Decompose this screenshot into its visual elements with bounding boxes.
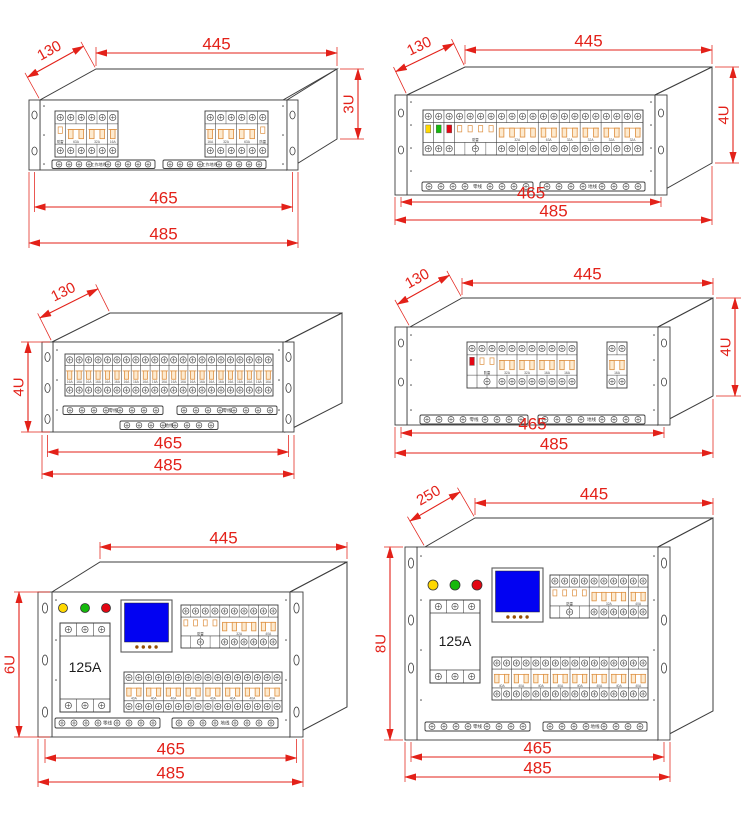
breaker-handle xyxy=(216,688,220,696)
breaker-rating-label: 40A xyxy=(210,697,217,701)
breaker-handle xyxy=(153,371,157,379)
breaker-rating-label: 40A xyxy=(265,632,272,636)
strip-label: 地线 xyxy=(221,720,230,726)
strip-label: 地线 xyxy=(588,183,597,189)
panel-rivet-dot xyxy=(43,163,45,165)
panel-rivet-dot xyxy=(653,555,655,557)
breaker-rating-label: 16A xyxy=(161,380,168,384)
indicator-lamp xyxy=(450,580,460,590)
dimension-label: 465 xyxy=(149,189,177,208)
breaker-handle xyxy=(172,371,176,379)
dimension-label: 485 xyxy=(154,456,182,475)
ear-slot-hole xyxy=(32,147,37,155)
breaker-handle xyxy=(592,592,596,601)
lcd-button xyxy=(135,645,138,648)
extension-line xyxy=(452,39,465,65)
dimension-label: 465 xyxy=(518,415,546,434)
panel-rivet-dot xyxy=(410,334,412,336)
breaker-handle xyxy=(209,371,213,379)
indicator-lamp xyxy=(428,580,438,590)
spd-module xyxy=(458,126,462,132)
breaker-handle xyxy=(247,371,251,379)
panel-rivet-dot xyxy=(420,699,422,701)
breaker-handle xyxy=(592,674,596,683)
breaker-handle xyxy=(89,130,94,139)
strip-label: 零线 xyxy=(223,407,232,414)
extension-line xyxy=(395,300,409,325)
breaker-handle xyxy=(631,674,635,683)
strip-label: 地线 xyxy=(165,422,174,428)
breaker-handle xyxy=(510,361,514,370)
breaker-handle xyxy=(206,688,210,696)
breaker-rating-label: 防雷 xyxy=(197,631,204,636)
breaker-handle xyxy=(77,371,81,379)
breaker-handle xyxy=(143,371,147,379)
breaker-handle xyxy=(620,361,624,370)
extension-line xyxy=(38,313,51,340)
breaker-handle xyxy=(504,674,508,683)
breaker-rating-label: 32A xyxy=(630,138,637,142)
panel-rivet-dot xyxy=(285,719,287,721)
mounting-ear xyxy=(287,100,298,170)
breaker-handle xyxy=(524,674,528,683)
breaker-handle xyxy=(255,688,259,696)
breaker-rating-label: 防雷 xyxy=(484,370,491,375)
breaker-rating-label: 40A xyxy=(518,684,525,688)
strip-label: 地线 xyxy=(591,723,600,729)
panel-rivet-dot xyxy=(410,170,412,172)
breaker-rating-label: 16A xyxy=(228,380,235,384)
panel-rivet-dot xyxy=(278,349,280,351)
breaker-rating-label: 16A xyxy=(207,140,214,144)
dimension-label: 445 xyxy=(580,485,608,504)
dimension-label: 465 xyxy=(157,740,185,759)
panel-rivet-dot xyxy=(650,147,652,149)
rack-unit-dimension-diagram: 防雷63A32A16A16A32A63A防雷工作地线工作地线1304453U46… xyxy=(0,0,750,814)
breaker-handle xyxy=(641,592,645,601)
breaker-handle xyxy=(176,688,180,696)
breaker-rating-label: 40A xyxy=(557,684,564,688)
strip-label: 地线 xyxy=(587,416,596,422)
breaker-handle xyxy=(604,128,609,137)
breaker-handle xyxy=(110,130,115,139)
breaker-handle xyxy=(621,592,625,601)
dimension-label: 485 xyxy=(540,435,568,454)
breaker-handle xyxy=(621,674,625,683)
panel-rivet-dot xyxy=(410,101,412,103)
breaker-rating-label: 63A xyxy=(546,138,553,142)
ear-slot-hole xyxy=(398,146,403,154)
breaker-rating-label: 16A xyxy=(86,380,93,384)
panel-rivet-dot xyxy=(282,105,284,107)
breaker-handle xyxy=(625,128,630,137)
spd-module xyxy=(261,127,265,133)
breaker-handle xyxy=(100,130,105,139)
breaker-rating-label: 16A xyxy=(142,380,149,384)
breaker-rating-label: 16A xyxy=(265,380,272,384)
spd-module xyxy=(490,358,494,364)
breaker-handle xyxy=(239,130,244,139)
panel-rivet-dot xyxy=(420,649,422,651)
breaker-handle xyxy=(68,371,72,379)
dimension-label: 445 xyxy=(209,529,237,548)
dimension-label: 485 xyxy=(523,759,551,778)
breaker-handle xyxy=(265,688,269,696)
dimension-label: 3U xyxy=(341,94,358,113)
breaker-handle xyxy=(223,622,227,631)
breaker-handle xyxy=(137,688,141,696)
ear-slot-hole xyxy=(42,655,47,665)
strip-label: 工作地线 xyxy=(91,162,107,167)
breaker-rating-label: 防雷 xyxy=(472,137,479,142)
breaker-handle xyxy=(500,361,504,370)
panel-rivet-dot xyxy=(653,649,655,651)
lcd-button xyxy=(154,645,157,648)
breaker-handle xyxy=(229,130,234,139)
breaker-handle xyxy=(181,371,185,379)
diagram-canvas: 防雷63A32A16A16A32A63A防雷工作地线工作地线1304453U46… xyxy=(0,0,750,814)
ear-slot-hole xyxy=(286,384,291,393)
spd-module xyxy=(184,620,188,626)
breaker-rating-label: 40A xyxy=(616,684,623,688)
breaker-rating-label: 40A xyxy=(230,697,237,701)
spd-module xyxy=(58,127,62,133)
panel-rivet-dot xyxy=(420,555,422,557)
dimension-label: 4U xyxy=(11,377,28,396)
breaker-handle xyxy=(602,592,606,601)
panel-rivet-dot xyxy=(43,105,45,107)
ear-slot-hole xyxy=(658,109,663,117)
breaker-handle xyxy=(242,622,246,631)
ear-slot-hole xyxy=(290,111,295,119)
breaker-handle xyxy=(573,128,578,137)
extension-line xyxy=(81,42,95,67)
mounting-ear xyxy=(405,547,417,740)
lcd-screen xyxy=(496,571,540,612)
breaker-handle xyxy=(68,130,73,139)
breaker-handle xyxy=(235,688,239,696)
lcd-button xyxy=(519,615,522,618)
breaker-rating-label: 16A xyxy=(190,380,197,384)
ear-slot-hole xyxy=(32,111,37,119)
breaker-rating-label: 32A xyxy=(514,138,521,142)
breaker-rating-label: 16A xyxy=(180,380,187,384)
breaker-rating-label: 40A xyxy=(499,684,506,688)
panel-rivet-dot xyxy=(410,124,412,126)
breaker-handle xyxy=(540,361,544,370)
spd-module xyxy=(480,358,484,364)
extension-line xyxy=(394,67,407,93)
breaker-rating-label: 40A xyxy=(170,697,177,701)
ear-slot-hole xyxy=(408,663,413,673)
panel-rivet-dot xyxy=(653,599,655,601)
breaker-rating-label: 63A xyxy=(244,140,251,144)
breaker-rating-label: 32A xyxy=(588,138,595,142)
extension-line xyxy=(25,73,39,98)
breaker-handle xyxy=(162,371,166,379)
dimension-label: 4U xyxy=(716,105,733,124)
indicator-lamp xyxy=(81,604,90,613)
breaker-rating-label: 32A xyxy=(504,371,511,375)
breaker-handle xyxy=(534,674,538,683)
panel-rivet-dot xyxy=(285,599,287,601)
breaker-rating-label: 16A xyxy=(218,380,225,384)
breaker-handle xyxy=(266,371,270,379)
panel-rivet-dot xyxy=(285,679,287,681)
dimension-label: 445 xyxy=(574,32,602,51)
lcd-button xyxy=(513,615,516,618)
breaker-handle xyxy=(602,674,606,683)
mounting-ear xyxy=(29,100,40,170)
breaker-handle xyxy=(186,688,190,696)
ear-slot-hole xyxy=(658,146,663,154)
breaker-handle xyxy=(257,371,261,379)
mounting-ear xyxy=(658,547,670,740)
dimension-label: 465 xyxy=(154,434,182,453)
panel-rivet-dot xyxy=(650,124,652,126)
breaker-rating-label: 32A xyxy=(567,138,574,142)
breaker-rating-label: 40A xyxy=(596,684,603,688)
dimension-label: 445 xyxy=(573,265,601,284)
ear-slot-hole xyxy=(42,707,47,717)
breaker-rating-label: 40A xyxy=(269,697,276,701)
breaker-rating-label: 32A xyxy=(236,632,243,636)
panel-rivet-dot xyxy=(55,639,57,641)
ear-slot-hole xyxy=(45,353,50,362)
ear-slot-hole xyxy=(45,415,50,424)
breaker-handle xyxy=(531,128,536,137)
breaker-handle xyxy=(615,128,620,137)
breaker-handle xyxy=(79,130,84,139)
breaker-rating-label: 16A xyxy=(67,380,74,384)
panel-rivet-dot xyxy=(653,699,655,701)
breaker-rating-label: 40A xyxy=(577,684,584,688)
spd-module xyxy=(479,126,483,132)
breaker-rating-label: 16A xyxy=(114,380,121,384)
breaker-handle xyxy=(612,592,616,601)
panel-rivet-dot xyxy=(653,384,655,386)
breaker-rating-label: 40A xyxy=(249,697,256,701)
breaker-rating-label: 16A xyxy=(133,380,140,384)
spd-module xyxy=(563,590,567,596)
breaker-rating-label: 16A xyxy=(246,380,253,384)
indicator-square xyxy=(447,125,452,133)
breaker-rating-label: 40A xyxy=(635,602,642,606)
top-face xyxy=(40,69,337,100)
breaker-rating-label: 16A xyxy=(105,380,112,384)
breaker-rating-label: 16A xyxy=(209,380,216,384)
breaker-rating-label: 16A xyxy=(237,380,244,384)
panel-rivet-dot xyxy=(56,379,58,381)
breaker-rating-label: 40A xyxy=(131,697,138,701)
panel-rivet-dot xyxy=(653,334,655,336)
lcd-button xyxy=(148,645,151,648)
ear-slot-hole xyxy=(294,707,299,717)
ear-slot-hole xyxy=(42,603,47,613)
breaker-handle xyxy=(232,622,236,631)
dimension-label: 485 xyxy=(149,225,177,244)
dimension-label: 6U xyxy=(2,655,19,674)
panel-rivet-dot xyxy=(56,349,58,351)
lcd-button xyxy=(142,645,145,648)
breaker-handle xyxy=(594,128,599,137)
breaker-handle xyxy=(553,674,557,683)
breaker-handle xyxy=(520,128,525,137)
breaker-handle xyxy=(115,371,119,379)
ear-slot-hole xyxy=(290,147,295,155)
breaker-rating-label: 16A xyxy=(614,371,621,375)
ear-slot-hole xyxy=(45,384,50,393)
panel-rivet-dot xyxy=(282,134,284,136)
spd-module xyxy=(582,590,586,596)
strip-label: 工作地线 xyxy=(202,162,218,167)
breaker-handle xyxy=(226,688,230,696)
extension-line xyxy=(447,271,461,296)
indicator-lamp xyxy=(472,580,482,590)
breaker-handle xyxy=(612,674,616,683)
breaker-rating-label: 40A xyxy=(538,684,545,688)
breaker-rating-label: 防雷 xyxy=(566,601,573,606)
breaker-rating-label: 40A xyxy=(190,697,197,701)
dimension-label: 130 xyxy=(402,265,432,292)
breaker-rating-label: 16A xyxy=(152,380,159,384)
breaker-handle xyxy=(552,128,557,137)
panel-rivet-dot xyxy=(653,359,655,361)
breaker-handle xyxy=(275,688,279,696)
spd-module xyxy=(573,590,577,596)
ear-slot-hole xyxy=(286,353,291,362)
dimension-label: 8U xyxy=(373,634,390,653)
panel-rivet-dot xyxy=(55,679,57,681)
ear-slot-hole xyxy=(286,415,291,424)
ear-slot-hole xyxy=(398,339,403,347)
breaker-rating-label: 防雷 xyxy=(57,139,64,144)
breaker-rating-label: 16A xyxy=(544,371,551,375)
spd-module xyxy=(489,126,493,132)
breaker-handle xyxy=(510,128,515,137)
breaker-handle xyxy=(219,371,223,379)
indicator-square xyxy=(426,125,431,133)
strip-label: 零线 xyxy=(473,723,482,730)
indicator-square xyxy=(470,357,475,365)
spd-module xyxy=(213,620,217,626)
breaker-handle xyxy=(583,128,588,137)
breaker-handle xyxy=(541,128,546,137)
breaker-rating-label: 防雷 xyxy=(259,139,266,144)
ear-slot-hole xyxy=(408,558,413,568)
breaker-handle xyxy=(87,371,91,379)
breaker-handle xyxy=(134,371,138,379)
panel-rivet-dot xyxy=(410,359,412,361)
panel-rivet-dot xyxy=(55,599,57,601)
panel-rivet-dot xyxy=(278,379,280,381)
ear-slot-hole xyxy=(294,603,299,613)
lcd-button xyxy=(506,615,509,618)
breaker-rating-label: 16A xyxy=(256,380,263,384)
breaker-handle xyxy=(641,674,645,683)
spd-module xyxy=(553,590,557,596)
ear-slot-hole xyxy=(294,655,299,665)
breaker-handle xyxy=(610,361,614,370)
breaker-handle xyxy=(631,592,635,601)
panel-rivet-dot xyxy=(410,147,412,149)
strip-label: 零线 xyxy=(109,407,118,414)
panel-rivet-dot xyxy=(285,639,287,641)
breaker-rating-label: 16A xyxy=(564,371,571,375)
ear-slot-hole xyxy=(398,378,403,386)
breaker-rating-label: 16A xyxy=(171,380,178,384)
panel-rivet-dot xyxy=(282,163,284,165)
ear-slot-hole xyxy=(661,558,666,568)
breaker-rating-label: 32A xyxy=(223,140,230,144)
breaker-handle xyxy=(156,688,160,696)
breaker-handle xyxy=(495,674,499,683)
main-breaker-rating: 125A xyxy=(69,659,102,675)
breaker-rating-label: 40A xyxy=(635,684,642,688)
panel-rivet-dot xyxy=(420,599,422,601)
breaker-rating-label: 16A xyxy=(95,380,102,384)
spd-module xyxy=(468,126,472,132)
breaker-rating-label: 16A xyxy=(110,140,117,144)
extension-line xyxy=(407,517,424,546)
breaker-rating-label: 63A xyxy=(73,140,80,144)
dimension-label: 130 xyxy=(34,37,64,64)
strip-label: 零线 xyxy=(470,416,479,423)
breaker-handle xyxy=(105,371,109,379)
breaker-rating-label: 40A xyxy=(151,697,158,701)
ear-slot-hole xyxy=(661,339,666,347)
breaker-handle xyxy=(228,371,232,379)
breaker-handle xyxy=(562,128,567,137)
breaker-handle xyxy=(635,128,640,137)
breaker-rating-label: 16A xyxy=(124,380,131,384)
breaker-handle xyxy=(191,371,195,379)
breaker-handle xyxy=(147,688,151,696)
breaker-handle xyxy=(166,688,170,696)
breaker-handle xyxy=(271,622,275,631)
indicator-lamp xyxy=(59,604,68,613)
breaker-handle xyxy=(550,361,554,370)
panel-rivet-dot xyxy=(56,409,58,411)
breaker-rating-label: 16A xyxy=(76,380,83,384)
lcd-button xyxy=(525,615,528,618)
breaker-handle xyxy=(570,361,574,370)
breaker-handle xyxy=(582,674,586,683)
panel-rivet-dot xyxy=(43,134,45,136)
breaker-handle xyxy=(245,688,249,696)
breaker-rating-label: 32A xyxy=(524,371,531,375)
breaker-handle xyxy=(530,361,534,370)
dimension-label: 445 xyxy=(202,35,230,54)
dimension-label: 250 xyxy=(414,482,444,509)
breaker-handle xyxy=(560,361,564,370)
breaker-rating-label: 32A xyxy=(606,602,613,606)
ear-slot-hole xyxy=(661,615,666,625)
panel-rivet-dot xyxy=(410,409,412,411)
breaker-handle xyxy=(208,130,213,139)
strip-label: 零线 xyxy=(103,720,112,727)
spd-module xyxy=(194,620,198,626)
ear-slot-hole xyxy=(398,109,403,117)
breaker-handle xyxy=(196,688,200,696)
breaker-handle xyxy=(252,622,256,631)
dimension-label: 485 xyxy=(156,764,184,783)
panel-rivet-dot xyxy=(278,409,280,411)
breaker-rating-label: 16A xyxy=(199,380,206,384)
dimension-label: 485 xyxy=(539,202,567,221)
breaker-handle xyxy=(124,371,128,379)
breaker-handle xyxy=(499,128,504,137)
